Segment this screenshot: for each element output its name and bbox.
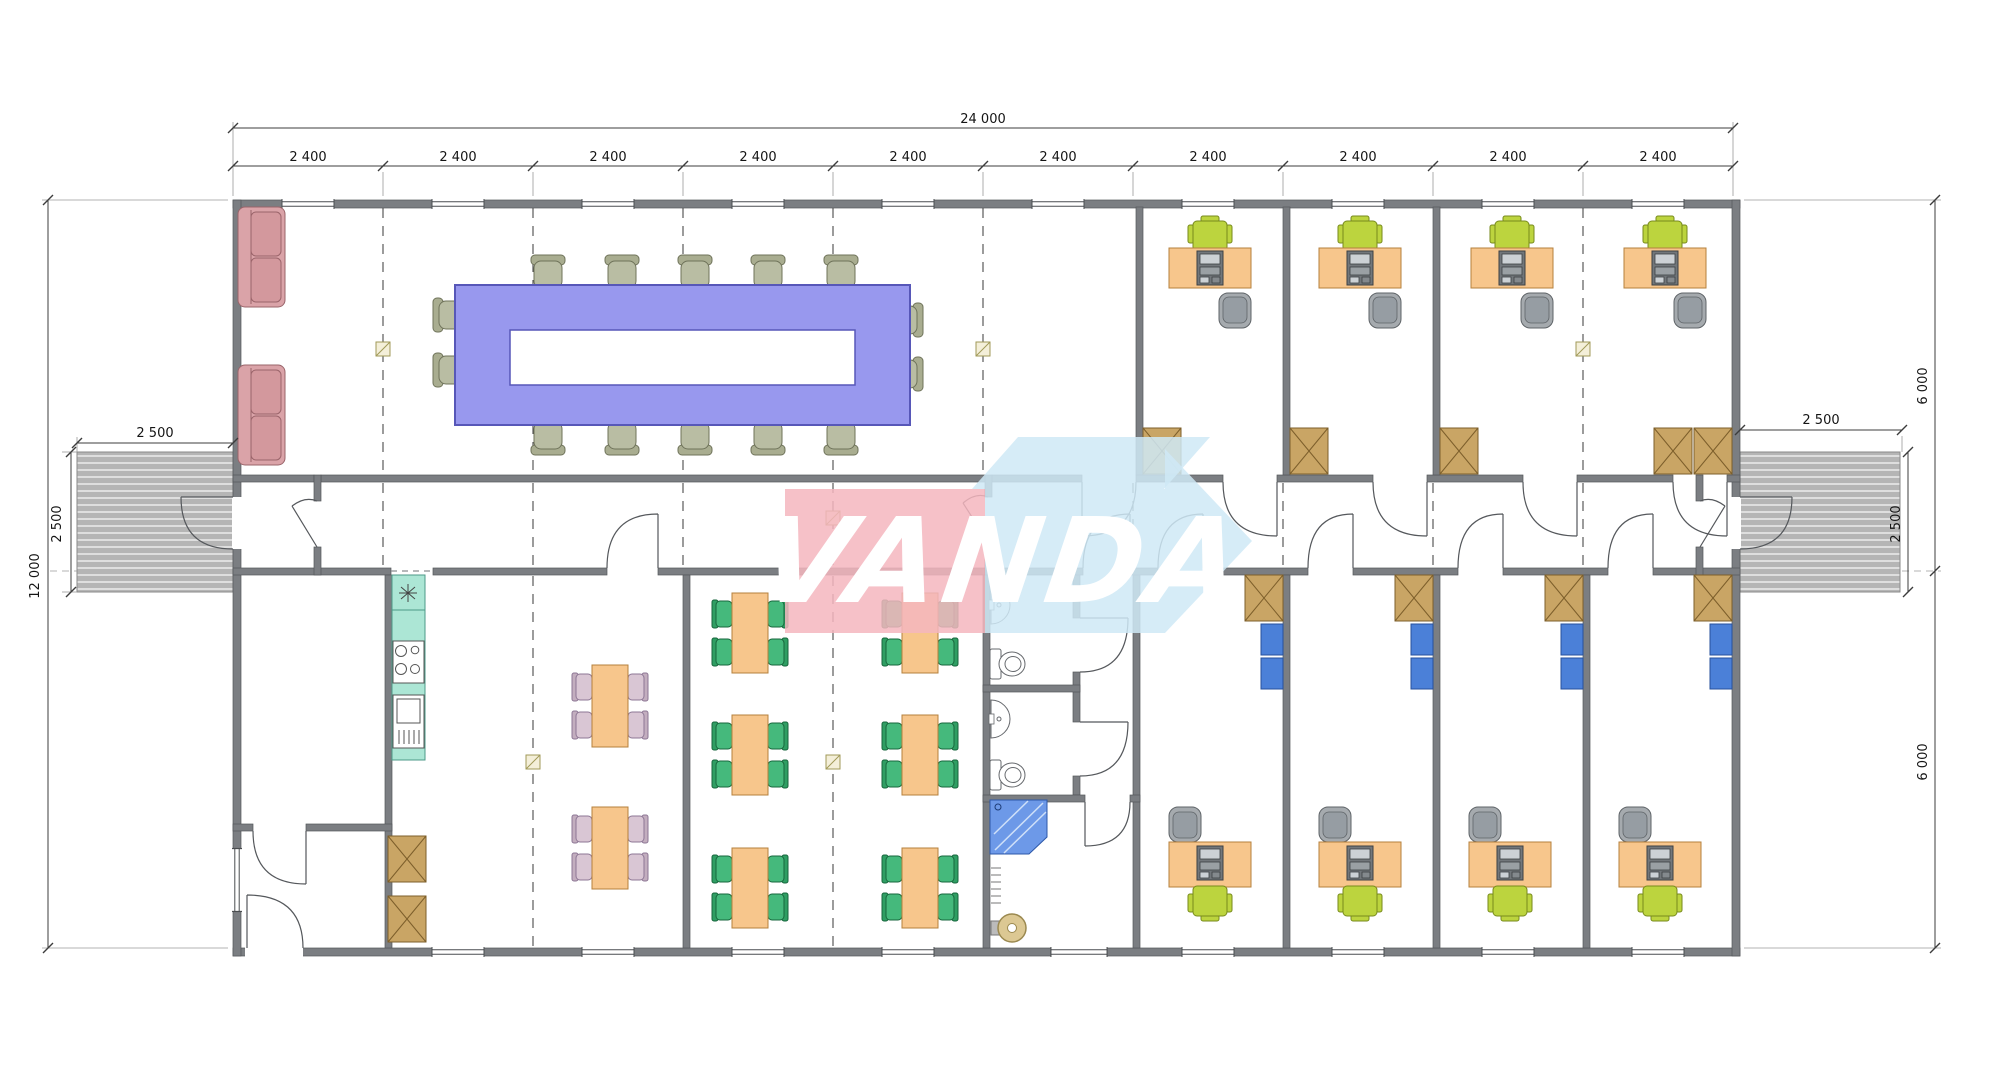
canteen-table: [712, 848, 788, 928]
storage-cabinet: [1545, 575, 1583, 621]
conference-room: [238, 207, 923, 465]
dim-bay-5: 2 400: [889, 150, 926, 165]
ramp-left: [77, 452, 233, 592]
radiator: [991, 868, 1001, 903]
storage-cabinet: [1395, 575, 1433, 621]
dining-table: [572, 665, 648, 747]
storage-cabinet: [1290, 428, 1328, 474]
toilet: [990, 760, 1025, 790]
workstation: [1624, 216, 1706, 328]
kitchen: [388, 575, 648, 942]
watermark-text: VANDA: [752, 493, 1254, 630]
dining-table: [572, 807, 648, 889]
storage-cabinet: [388, 896, 426, 942]
dim-bay-2: 2 400: [439, 150, 476, 165]
storage-cabinet: [1654, 428, 1692, 474]
exterior-wall-right: [1732, 200, 1740, 956]
shelf-units: [1261, 624, 1732, 689]
dim-bay-7: 2 400: [1189, 150, 1226, 165]
dim-right-lower: 6 000: [1916, 743, 1931, 780]
dim-bay-9: 2 400: [1489, 150, 1526, 165]
workstation: [1169, 216, 1251, 328]
storage-cabinet: [1694, 428, 1732, 474]
dim-bay-4: 2 400: [739, 150, 776, 165]
offices-bottom: [1169, 575, 1732, 921]
dim-right-ramp-width: 2 500: [1802, 413, 1839, 428]
shower-cabin: [990, 800, 1047, 854]
canteen-table: [712, 715, 788, 795]
workstation: [1319, 216, 1401, 328]
workstation: [1469, 807, 1551, 921]
dim-total-width: 24 000: [960, 112, 1006, 127]
canteen-table: [882, 848, 958, 928]
vanda-watermark: VANDA: [752, 437, 1254, 633]
floor-plan-canvas: VANDA 24 000 2 400 2 400 2 400 2 400 2 4…: [0, 0, 2000, 1069]
dim-left-ramp-width: 2 500: [136, 426, 173, 441]
storage-cabinet: [388, 836, 426, 882]
conference-table-opening: [510, 330, 855, 385]
dim-bay-3: 2 400: [589, 150, 626, 165]
storage-cabinet: [1245, 575, 1283, 621]
sofa: [238, 207, 285, 307]
workstation: [1169, 807, 1251, 921]
dim-bay-10: 2 400: [1639, 150, 1676, 165]
wash-sink: [989, 700, 1010, 738]
toilet: [990, 649, 1025, 679]
dim-right-ramp-depth: 2 500: [1889, 505, 1904, 542]
dim-bay-1: 2 400: [289, 150, 326, 165]
dim-right-upper: 6 000: [1916, 367, 1931, 404]
workstation: [1471, 216, 1553, 328]
canteen-table: [882, 715, 958, 795]
workstation: [1619, 807, 1701, 921]
bathrooms: [989, 586, 1047, 942]
dim-left-ramp-depth: 2 500: [50, 505, 65, 542]
floor-plan-page: VANDA 24 000 2 400 2 400 2 400 2 400 2 4…: [0, 0, 2000, 1069]
stove: [393, 641, 424, 683]
exterior-wall-left: [233, 200, 241, 956]
dim-total-height: 12 000: [28, 553, 43, 599]
storage-cabinet: [1694, 575, 1732, 621]
water-heater: [991, 914, 1026, 942]
workstation: [1319, 807, 1401, 921]
dim-bay-8: 2 400: [1339, 150, 1376, 165]
sofa: [238, 365, 285, 465]
dim-bay-6: 2 400: [1039, 150, 1076, 165]
storage-cabinet: [1440, 428, 1478, 474]
ramp-right: [1740, 452, 1900, 592]
